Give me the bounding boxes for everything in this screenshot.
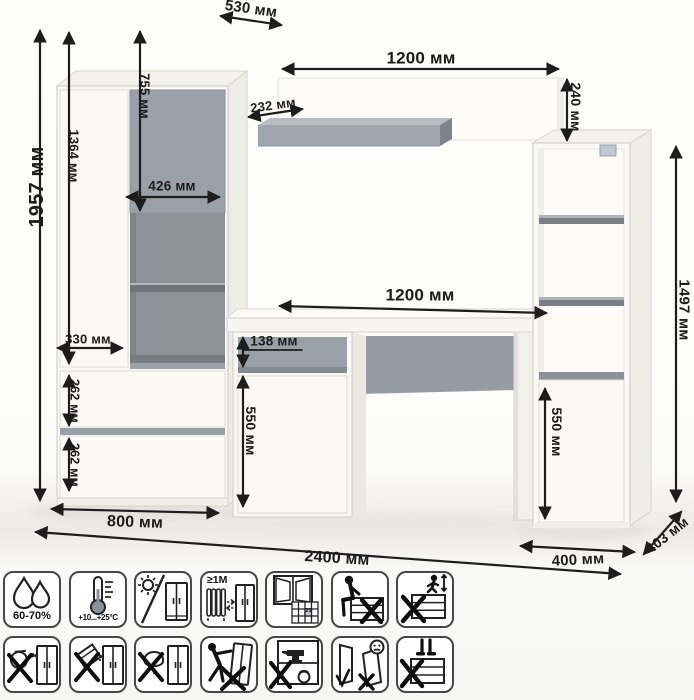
min-distance-value: ≥1M xyxy=(207,575,227,586)
person-sitting-chest-glyph xyxy=(333,573,387,626)
anvil-cabinet-glyph xyxy=(267,638,321,691)
door-adjustment-warning-icon xyxy=(331,636,389,693)
no-direct-sunlight-icon xyxy=(134,571,192,628)
desk-back-panel xyxy=(360,336,516,394)
wall-shelf xyxy=(258,118,452,146)
dim-lower-drawer-height: 262 мм xyxy=(68,443,81,487)
calendar-day: 21 xyxy=(304,609,313,615)
dim-niche-width: 330 мм xyxy=(65,333,111,346)
dim-wall-panel-width: 1200 мм xyxy=(386,50,455,67)
warped-door-glyph xyxy=(333,638,387,691)
bookcase-side xyxy=(630,130,651,526)
wardrobe-drawer-lower xyxy=(60,436,225,498)
person-dragging-wardrobe-glyph xyxy=(202,638,256,691)
no-jumping-on-furniture-icon xyxy=(396,571,454,628)
dim-grey-door-width: 426 мм xyxy=(148,179,195,193)
no-wet-cleaning-icon xyxy=(134,636,192,693)
kettle-wardrobe-glyph xyxy=(5,638,59,691)
dimension-drawing: 530 мм 1957 мм 1364 мм 755 мм 426 мм 232… xyxy=(0,0,694,700)
dim-bookcase-width: 400 мм xyxy=(551,551,604,569)
no-abrasive-powder-icon xyxy=(69,636,127,693)
dim-total-height: 1957 мм xyxy=(27,146,47,227)
humidity-range-icon: 60-70% xyxy=(3,571,61,628)
feet-on-chest-glyph xyxy=(398,638,452,691)
temperature-range-icon: +10...+25°C xyxy=(69,571,127,628)
cable-outlet xyxy=(600,145,616,156)
humidity-value: 60-70% xyxy=(5,611,59,622)
temperature-value: +10...+25°C xyxy=(71,614,125,622)
wardrobe-drawer-upper xyxy=(60,371,225,427)
open-window-calendar-glyph xyxy=(267,573,321,626)
ventilate-room-icon: 21 xyxy=(265,571,323,628)
bookcase xyxy=(533,130,651,528)
dim-grey-door-height: 755 мм xyxy=(139,73,152,119)
bookcase-shelf-2 xyxy=(539,300,624,306)
no-dragging-furniture-icon xyxy=(200,636,258,693)
powder-box-wardrobe-glyph xyxy=(71,638,125,691)
dim-desk-door-height: 550 мм xyxy=(244,406,258,455)
bookcase-open-section xyxy=(539,149,624,380)
no-sitting-on-furniture-icon xyxy=(331,571,389,628)
wet-sponge-wardrobe-glyph xyxy=(136,638,190,691)
dim-bookcase-height: 1497 мм xyxy=(677,279,692,340)
no-hot-objects-icon xyxy=(3,636,61,693)
dim-desk-drawer-height: 138 мм xyxy=(250,334,297,348)
sun-wardrobe-glyph xyxy=(136,573,190,626)
niche-shelf xyxy=(130,285,225,292)
distance-from-heaters-icon: ≥1M xyxy=(200,571,258,628)
dim-bookcase-door-height: 550 мм xyxy=(550,407,564,456)
dim-left-door-height: 1364 мм xyxy=(68,129,81,182)
person-jumping-chest-glyph xyxy=(398,573,452,626)
left-wardrobe xyxy=(57,71,247,506)
dim-desk-width: 1200 мм xyxy=(385,287,454,304)
bookcase-shelf-1 xyxy=(539,218,624,224)
desktop-edge xyxy=(227,318,536,332)
no-overloading-icon xyxy=(265,636,323,693)
dim-wardrobe-width: 800 мм xyxy=(107,514,164,532)
no-standing-on-furniture-icon xyxy=(396,636,454,693)
dim-wall-panel-height: 240 мм xyxy=(569,82,583,131)
desktop-surface xyxy=(227,309,546,318)
drawer-divider-strip xyxy=(60,428,225,435)
dim-upper-drawer-height: 262 мм xyxy=(68,379,81,423)
